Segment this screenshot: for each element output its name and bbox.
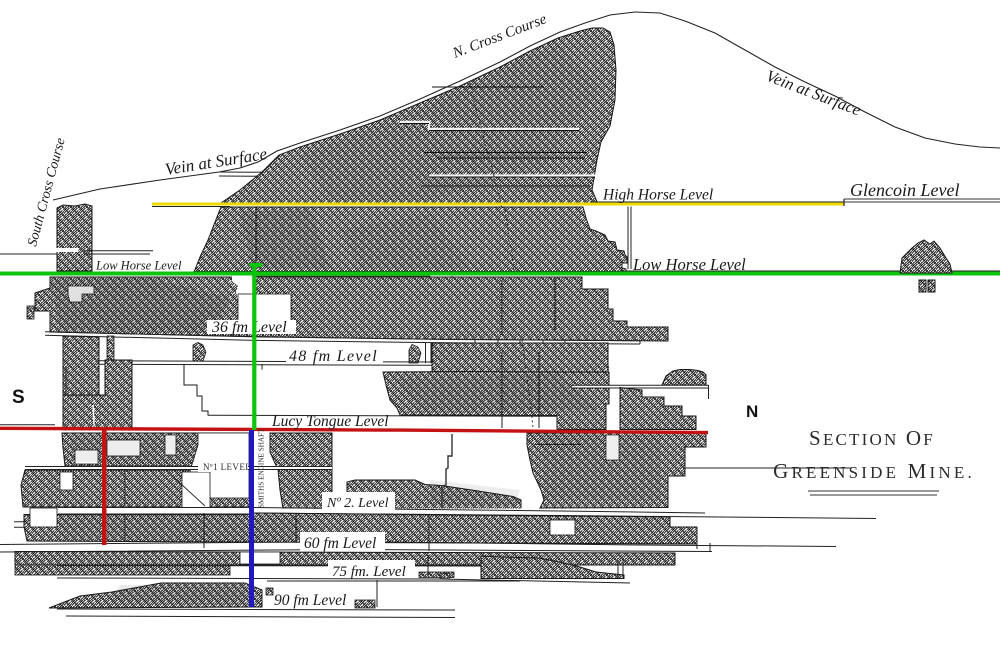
svg-text:Nº 2. Level: Nº 2. Level [326,496,389,511]
svg-text:SMITHS ENGINE SHAFT: SMITHS ENGINE SHAFT [258,428,266,508]
svg-text:S: S [12,387,25,408]
svg-text:Low Horse Level: Low Horse Level [632,255,746,274]
svg-text:60 fm Level: 60 fm Level [304,535,376,552]
svg-text:75 fm. Level: 75 fm. Level [332,564,406,580]
svg-text:Glencoin Level: Glencoin Level [850,180,959,200]
svg-text:Nº1 LEVEL: Nº1 LEVEL [203,462,251,472]
svg-text:GREENSIDE MINE.: GREENSIDE MINE. [773,459,975,483]
svg-text:SECTION OF: SECTION OF [809,426,935,450]
svg-text:Low Horse Level: Low Horse Level [95,259,182,273]
svg-text:48 fm Level: 48 fm Level [289,348,378,365]
svg-text:High Horse Level: High Horse Level [602,187,713,204]
svg-text:N: N [746,402,758,421]
svg-text:90 fm Level: 90 fm Level [274,592,346,609]
svg-text:36 fm Level: 36 fm Level [211,319,287,336]
svg-text:Lucy Tongue Level: Lucy Tongue Level [271,413,389,430]
